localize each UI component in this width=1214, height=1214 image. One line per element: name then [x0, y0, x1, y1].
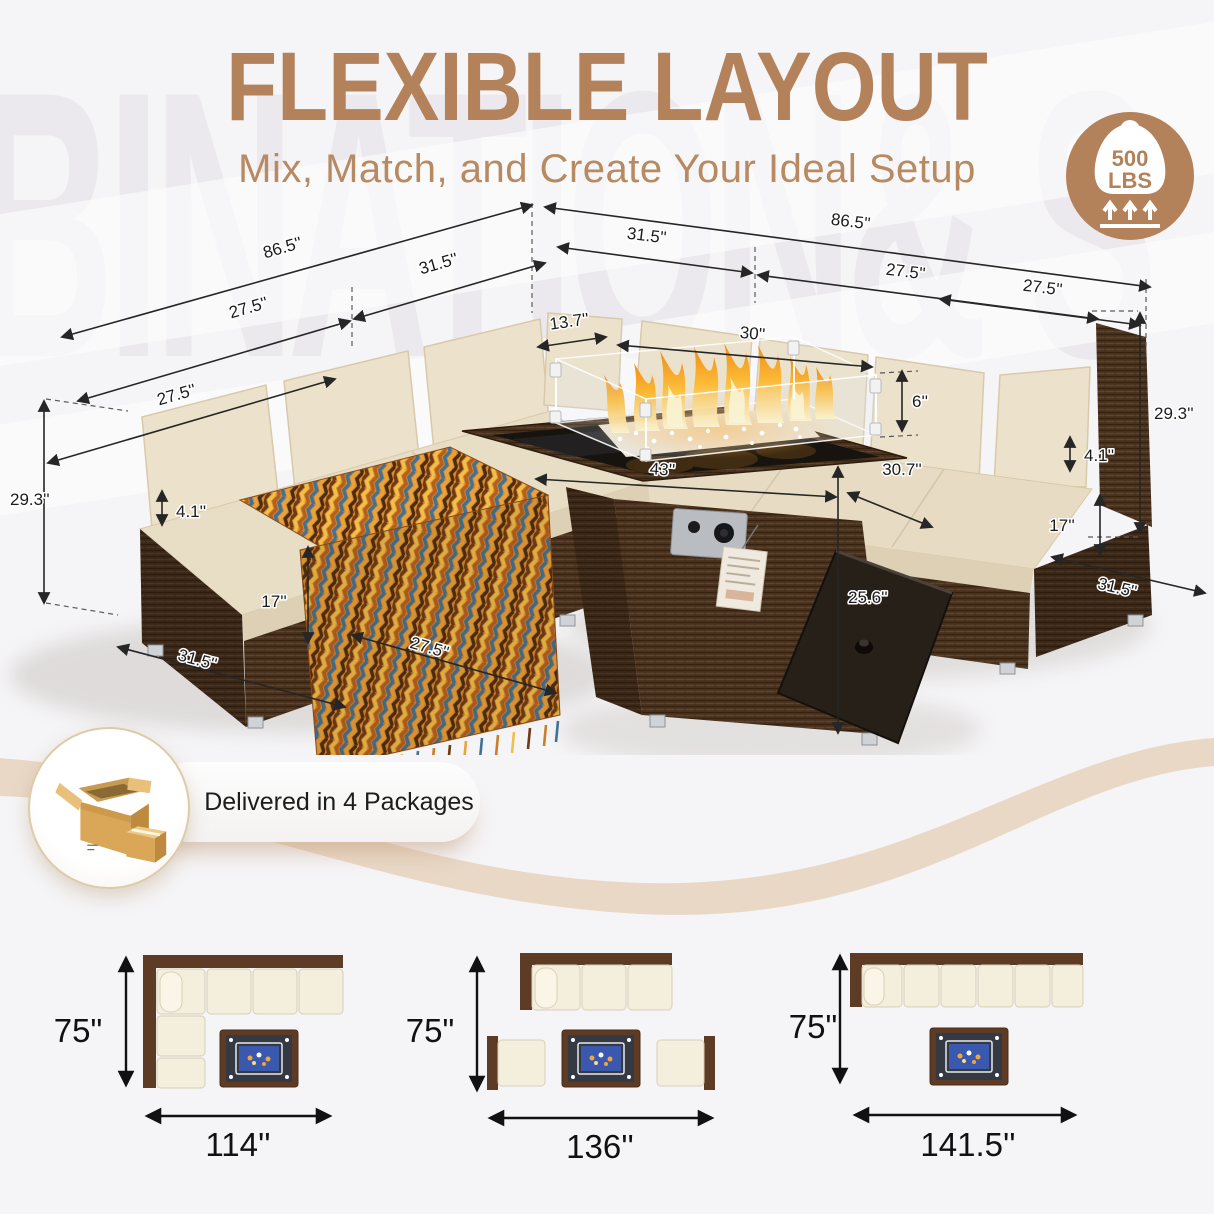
dim-label: 30.7'': [882, 460, 922, 479]
dim-label: 17'': [1049, 516, 1074, 535]
dim-label: 27.5'': [1022, 276, 1064, 300]
dim-label: 31.5'': [417, 249, 460, 278]
layout-height-label: 75": [789, 1008, 837, 1045]
layout-chair-left: [487, 1036, 545, 1090]
dim-label: 86.5'': [261, 233, 304, 262]
layout-width-label: 114'': [205, 1126, 270, 1163]
layout-firetable-topview: [562, 1030, 640, 1087]
dim-label: 43'': [649, 459, 676, 480]
page-title: FLEXIBLE LAYOUT: [85, 34, 1129, 141]
page-subtitle: Mix, Match, and Create Your Ideal Setup: [0, 147, 1214, 192]
dim-label: 29.3'': [10, 490, 50, 509]
dim-label: 4.1'': [1084, 446, 1114, 465]
dim-label: 4.1'': [176, 502, 206, 521]
layout-option-straight-sofa: 75" 141.5'': [789, 953, 1083, 1163]
dim-label: 25.6'': [848, 588, 888, 607]
package-boxes-icon: [44, 743, 174, 873]
dim-label: 6'': [912, 392, 928, 411]
dim-label: 30'': [739, 323, 766, 344]
layout-options: 75" 114'' 75": [0, 930, 1214, 1214]
weight-icon: 500 LBS: [1066, 112, 1194, 240]
furniture-scene: 86.5'' 31.5'' 27.5'' 27.5'' 86.5'' 31.5'…: [0, 195, 1214, 755]
delivery-pill: Delivered in 4 Packages: [150, 762, 480, 842]
package-circle: [28, 727, 190, 889]
delivery-badge: Delivered in 4 Packages: [0, 722, 520, 892]
dim-label: 29.3'': [1154, 404, 1194, 423]
dim-label: 27.5'': [885, 260, 927, 284]
layout-height-label: 75": [54, 1012, 102, 1049]
weight-capacity-badge: 500 LBS: [1066, 112, 1194, 240]
layout-sofa-topview: [850, 953, 1083, 1007]
layout-chair-right: [657, 1036, 715, 1090]
layout-option-l-shaped: 75" 114'': [54, 955, 343, 1163]
header: FLEXIBLE LAYOUT Mix, Match, and Create Y…: [0, 34, 1214, 192]
product-infographic: BINATION& S FLEXIBLE LAYOUT Mix, Match, …: [0, 0, 1214, 1214]
layout-firetable-topview: [930, 1028, 1008, 1085]
capacity-unit: LBS: [1108, 168, 1152, 193]
layout-width-label: 141.5'': [920, 1126, 1015, 1163]
dim-label: 86.5'': [830, 210, 872, 234]
up-arrows-icon: [1104, 203, 1156, 220]
dim-label: 17'': [261, 592, 286, 611]
dim-label: 27.5'': [227, 293, 270, 322]
layout-height-label: 75": [406, 1012, 454, 1049]
layout-firetable-topview: [220, 1030, 298, 1087]
layout-sofa-topview: [520, 953, 672, 1010]
layout-width-label: 136'': [566, 1128, 634, 1165]
layout-option-sofa-chairs: 75" 136'': [406, 953, 715, 1165]
dim-label: 31.5'': [626, 224, 668, 248]
delivery-label: Delivered in 4 Packages: [204, 788, 474, 817]
